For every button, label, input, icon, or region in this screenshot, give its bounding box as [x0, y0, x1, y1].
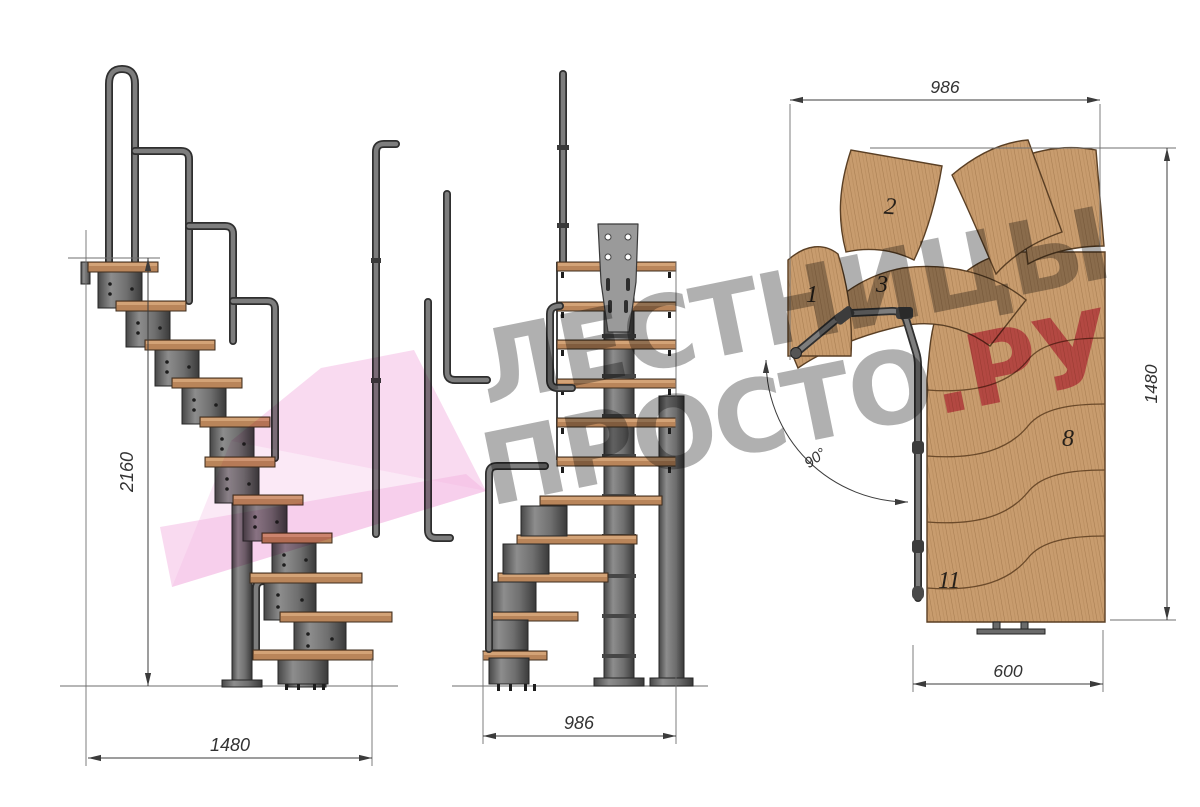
drawing-canvas: 1 2 3 8 11 2160 1480 986 — [0, 0, 1200, 807]
newel-pole — [557, 74, 569, 262]
staircase-technical-drawing: 1 2 3 8 11 2160 1480 986 — [0, 0, 1200, 807]
step-label-8: 8 — [1062, 426, 1074, 452]
dim-label-1480-plan: 1480 — [1141, 364, 1161, 403]
dimension-side-width: 1480 — [88, 658, 372, 766]
rail-joint — [912, 540, 924, 553]
base-flange — [594, 678, 644, 686]
dimension-plan-bottom: 600 — [913, 630, 1103, 692]
base-plate-plan — [977, 622, 1045, 634]
step-label-2: 2 — [883, 194, 897, 221]
step-label-11: 11 — [938, 568, 960, 594]
rail-end-cap — [912, 586, 924, 600]
dim-label-600-plan: 600 — [993, 661, 1022, 681]
dim-label-2160: 2160 — [117, 452, 137, 493]
dim-label-986-front: 986 — [564, 713, 595, 733]
dim-label-1480-side: 1480 — [210, 735, 250, 755]
dim-label-986-plan: 986 — [930, 77, 959, 97]
rail-joint — [371, 258, 381, 263]
lower-modules-front — [486, 506, 567, 691]
